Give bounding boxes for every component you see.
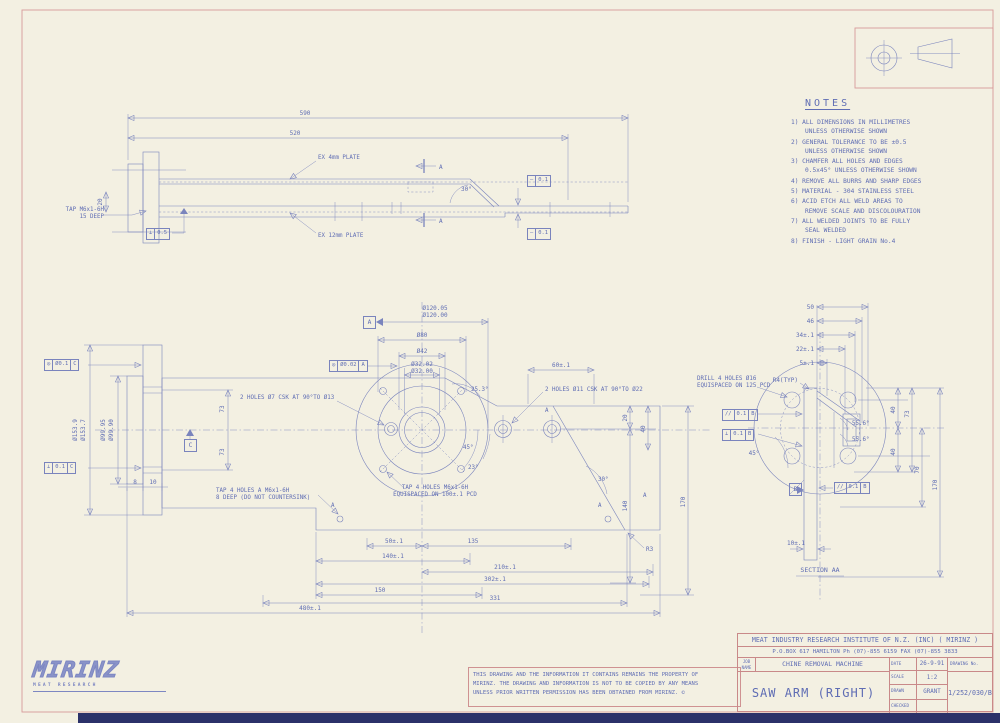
dim-sec-73: 73: [904, 410, 911, 418]
callout-holes-dia11: 2 HOLES Ø11 CSK AT 90°TO Ø22: [545, 386, 643, 393]
logo-rule: [33, 691, 166, 692]
callout-holes-dia7: 2 HOLES Ø7 CSK AT 90°TO Ø13: [240, 394, 335, 401]
note-item: 1) ALL DIMENSIONS IN MILLIMETRES UNLESS …: [791, 118, 973, 137]
hole-mark-a3: A: [598, 503, 602, 509]
datum-flag-c: C: [184, 439, 197, 452]
fcf-symbol: ◎: [330, 361, 337, 371]
section-mark-a1: A: [439, 164, 443, 171]
section-mark-a2: A: [439, 218, 443, 225]
dim-dia32-upper: Ø32.02: [411, 361, 433, 368]
notes-panel: NOTES 1) ALL DIMENSIONS IN MILLIMETRES U…: [791, 98, 973, 247]
job-name-label: JOB NAME: [738, 658, 756, 671]
angle-45: 45°: [463, 445, 473, 451]
fcf-straightness-2: –0.1: [527, 228, 551, 240]
fcf-symbol: –: [528, 176, 535, 186]
fcf-datum-ref: B: [745, 430, 753, 440]
dim-sec-70: 70: [914, 466, 921, 474]
drawing-title: SAW ARM (RIGHT): [738, 672, 889, 713]
dim-170: 170: [680, 496, 687, 507]
fcf-perpendicularity-flange: ⊥0.1C: [44, 462, 76, 474]
dim-dia32-lower: Ø32.00: [411, 368, 433, 375]
dim-dia153-upper: Ø153.9: [72, 419, 79, 441]
angle-23: 23°: [468, 465, 478, 471]
notes-list: 1) ALL DIMENSIONS IN MILLIMETRES UNLESS …: [791, 118, 973, 246]
scale-label: SCALE: [890, 671, 917, 684]
angle-30-main: 30°: [598, 477, 608, 483]
dim-dia99-lower: Ø99.90: [108, 419, 115, 441]
dim-dia120-lower: Ø120.00: [422, 312, 448, 319]
dim-20: 20: [97, 198, 104, 206]
dim-sec-170: 170: [932, 479, 939, 490]
fcf-value: 0.1: [846, 483, 861, 493]
fcf-straightness-1: –0.1: [527, 175, 551, 187]
dim-140t: 140±.1: [382, 553, 404, 560]
hole-mark-a2: A: [331, 503, 335, 509]
scale-value: 1:2: [917, 671, 947, 684]
datum-flag-b: B: [789, 483, 802, 496]
fcf-perpendicularity-section: ⊥0.1B: [722, 429, 754, 441]
logo-tagline: MEAT RESEARCH: [33, 683, 173, 688]
dim-150: 150: [375, 587, 386, 594]
angle-sec-556b: 55.6°: [852, 437, 869, 443]
dim-sec-22: 22±.1: [796, 346, 814, 353]
section-aa-label: SECTION AA: [800, 566, 839, 574]
checked-value: [917, 700, 947, 713]
fcf-value: 0.1: [535, 229, 550, 239]
angle-25-3: 25.3°: [471, 387, 488, 393]
fcf-symbol: ⊥: [45, 463, 52, 473]
note-item: 2) GENERAL TOLERANCE TO BE ±0.5 UNLESS O…: [791, 138, 973, 157]
fcf-perpendicularity-05: ⊥0.5: [146, 228, 170, 240]
company-name: MEAT INDUSTRY RESEARCH INSTITUTE OF N.Z.…: [738, 634, 992, 647]
fcf-datum-ref: A: [358, 361, 366, 371]
hole-mark-a4: A: [643, 493, 647, 499]
hole-mark-a1: A: [545, 408, 549, 414]
dim-20-right: 20: [622, 414, 629, 422]
fcf-parallelism-section-2: //0.1B: [834, 482, 870, 494]
note-item: 3) CHAMFER ALL HOLES AND EDGES 0.5x45° U…: [791, 157, 973, 176]
dim-sec-46: 46: [807, 318, 815, 325]
scan-edge-bar: [78, 713, 1000, 723]
disclaimer-box: THIS DRAWING AND THE INFORMATION IT CONT…: [468, 667, 741, 707]
callout-ex4-plate: EX 4mm PLATE: [318, 155, 360, 161]
projection-symbol: [855, 28, 993, 88]
fcf-symbol: –: [528, 229, 535, 239]
dim-sec-10: 10±.1: [787, 540, 805, 547]
dim-sec-40b: 40: [890, 448, 897, 456]
drawing-sheet: 590 520 20 EX 4mm PLATE EX 12mm PLATE A …: [0, 0, 1000, 723]
dim-10-main: 10: [149, 479, 157, 486]
section-aa-view: 50 46 34±.1 22±.1 5±.1 R4(TYP) 40 40 73 …: [748, 303, 946, 602]
date-label: DATE: [890, 658, 917, 670]
datum-flag-a: A: [363, 316, 376, 329]
fcf-symbol: ⊥: [147, 229, 154, 239]
fcf-datum-ref: B: [748, 410, 756, 420]
dim-sec-40a: 40: [890, 406, 897, 414]
drawing-no-value: 1/252/030/B: [948, 672, 992, 713]
callout-tap4-deep: TAP 4 HOLES A M6x1-6H 8 DEEP (DO NOT COU…: [216, 488, 336, 502]
dim-dia99-upper: Ø99.95: [100, 419, 107, 441]
note-item: 8) FINISH - LIGHT GRAIN No.4: [791, 237, 973, 246]
dim-480: 480±.1: [299, 605, 321, 612]
dim-73-upper: 73: [219, 405, 226, 413]
dim-331: 331: [490, 595, 501, 602]
fcf-value: Ø0.02: [337, 361, 358, 371]
dim-73-lower: 73: [219, 448, 226, 456]
fcf-value: 0.1: [730, 430, 745, 440]
dim-140: 140: [622, 500, 629, 511]
callout-drill-4-holes: DRILL 4 HOLES Ø16 EQUISPACED ON 125 PCD: [697, 376, 789, 390]
drawn-value: GRANT: [917, 685, 947, 698]
fcf-datum-ref: B: [860, 483, 868, 493]
fcf-concentricity-flange: ◎Ø0.1C: [44, 359, 79, 371]
drawn-label: DRAWN: [890, 685, 917, 698]
fcf-value: 0.1: [535, 176, 550, 186]
job-name: CHINE REMOVAL MACHINE: [756, 658, 889, 671]
fcf-value: 0.5: [154, 229, 169, 239]
section-plate-hatched: [804, 388, 817, 560]
fcf-datum-ref: C: [67, 463, 75, 473]
arm-outline: [162, 378, 660, 530]
callout-tap-m6-flange: TAP M6x1-6H 15 DEEP: [46, 207, 104, 221]
fcf-concentricity-hub: ◎Ø0.02A: [329, 360, 368, 372]
fcf-value: 0.1: [52, 463, 67, 473]
mirinz-logo: MIRINZ MEAT RESEARCH: [33, 660, 173, 692]
dim-dia42: Ø42: [417, 348, 428, 355]
note-item: 4) REMOVE ALL BURRS AND SHARP EDGES: [791, 177, 973, 186]
callout-r3: R3: [646, 546, 654, 553]
checked-label: CHECKED: [890, 700, 917, 713]
dim-520: 520: [290, 130, 301, 137]
dim-60: 60±.1: [552, 362, 570, 369]
angle-30-top: 30°: [461, 186, 472, 193]
dim-sec-5: 5±.1: [800, 360, 815, 367]
dim-dia153-lower: Ø153.7: [80, 419, 87, 441]
logo-wordmark: MIRINZ: [31, 660, 174, 682]
fcf-symbol: ⊥: [723, 430, 730, 440]
fcf-symbol: //: [723, 410, 734, 420]
dim-302: 302±.1: [484, 576, 506, 583]
note-item: 6) ACID ETCH ALL WELD AREAS TO REMOVE SC…: [791, 197, 973, 216]
fcf-value: Ø0.1: [52, 360, 70, 370]
fcf-symbol: ◎: [45, 360, 52, 370]
dim-dia80: Ø80: [417, 332, 428, 339]
company-address: P.O.BOX 617 HAMILTON Ph (07)-855 6159 FA…: [738, 647, 992, 658]
drawing-no-label: DRAWING No.: [948, 658, 992, 672]
callout-tap4-pcd: TAP 4 HOLES M6x1-6H EQUISPACED ON 100±.1…: [370, 485, 500, 499]
dim-40-right: 40: [640, 425, 647, 433]
dim-sec-50: 50: [807, 304, 815, 311]
dim-590: 590: [300, 110, 311, 117]
dim-dia120-upper: Ø120.05: [422, 305, 448, 312]
title-block: MEAT INDUSTRY RESEARCH INSTITUTE OF N.Z.…: [737, 633, 993, 712]
dim-sec-34: 34±.1: [796, 332, 814, 339]
fcf-parallelism-section: //0.1B: [722, 409, 758, 421]
note-item: 7) ALL WELDED JOINTS TO BE FULLY SEAL WE…: [791, 217, 973, 236]
note-item: 5) MATERIAL - 304 STAINLESS STEEL: [791, 187, 973, 196]
dim-210: 210±.1: [494, 564, 516, 571]
fcf-value: 0.1: [734, 410, 749, 420]
dim-135: 135: [468, 538, 479, 545]
angle-sec-45: 45°: [749, 450, 760, 457]
dim-50: 50±.1: [385, 538, 403, 545]
dim-8: 8: [133, 479, 137, 486]
fcf-symbol: //: [835, 483, 846, 493]
angle-sec-556a: 55.6°: [852, 421, 869, 427]
date-value: 26-9-91: [917, 658, 947, 670]
notes-title: NOTES: [805, 98, 973, 109]
callout-ex12-plate: EX 12mm PLATE: [318, 233, 364, 239]
main-view: Ø120.05 Ø120.00 Ø80 Ø42 Ø32.02 Ø32.00 60…: [72, 302, 712, 633]
fcf-datum-ref: C: [70, 360, 78, 370]
